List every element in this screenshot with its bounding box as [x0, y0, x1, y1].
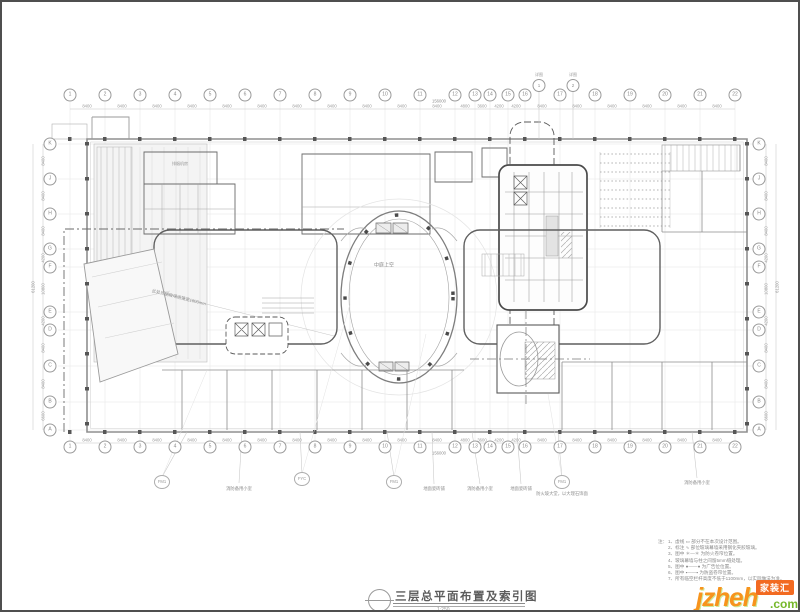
watermark: jzheh .com 家装汇 — [694, 580, 800, 612]
notes-lines: 1、虚线 ▭ 部分不在本次设计范围。2、标注 ∿ 部位玻璃幕墙采用钢化夹胶玻璃。… — [668, 539, 798, 582]
drawing-sheet: 12345678910111213141516171819202122 1234… — [0, 0, 800, 612]
title-symbol-circle — [368, 589, 391, 612]
atrium-label: 中庭上空 — [374, 262, 394, 269]
overall-height-dim: 61200 — [775, 281, 780, 293]
overall-height-dim: 61200 — [31, 281, 36, 293]
watermark-badge: 家装汇 — [756, 580, 794, 595]
notes-block: 注： 1、虚线 ▭ 部分不在本次设计范围。2、标注 ∿ 部位玻璃幕墙采用钢化夹胶… — [668, 539, 798, 582]
title-underline — [393, 603, 525, 604]
sheet-scale: 1:250 — [437, 607, 450, 612]
overall-width-dim: 156000 — [432, 99, 446, 104]
overall-width-dim: 156000 — [432, 451, 446, 456]
watermark-tld: .com — [770, 597, 798, 611]
notes-heading: 注： — [658, 539, 667, 545]
title-underline-thin — [393, 606, 525, 607]
sheet-title: 三层总平面布置及索引图 — [395, 588, 538, 604]
plan-linework — [2, 2, 800, 612]
watermark-name: jzheh — [696, 582, 757, 612]
